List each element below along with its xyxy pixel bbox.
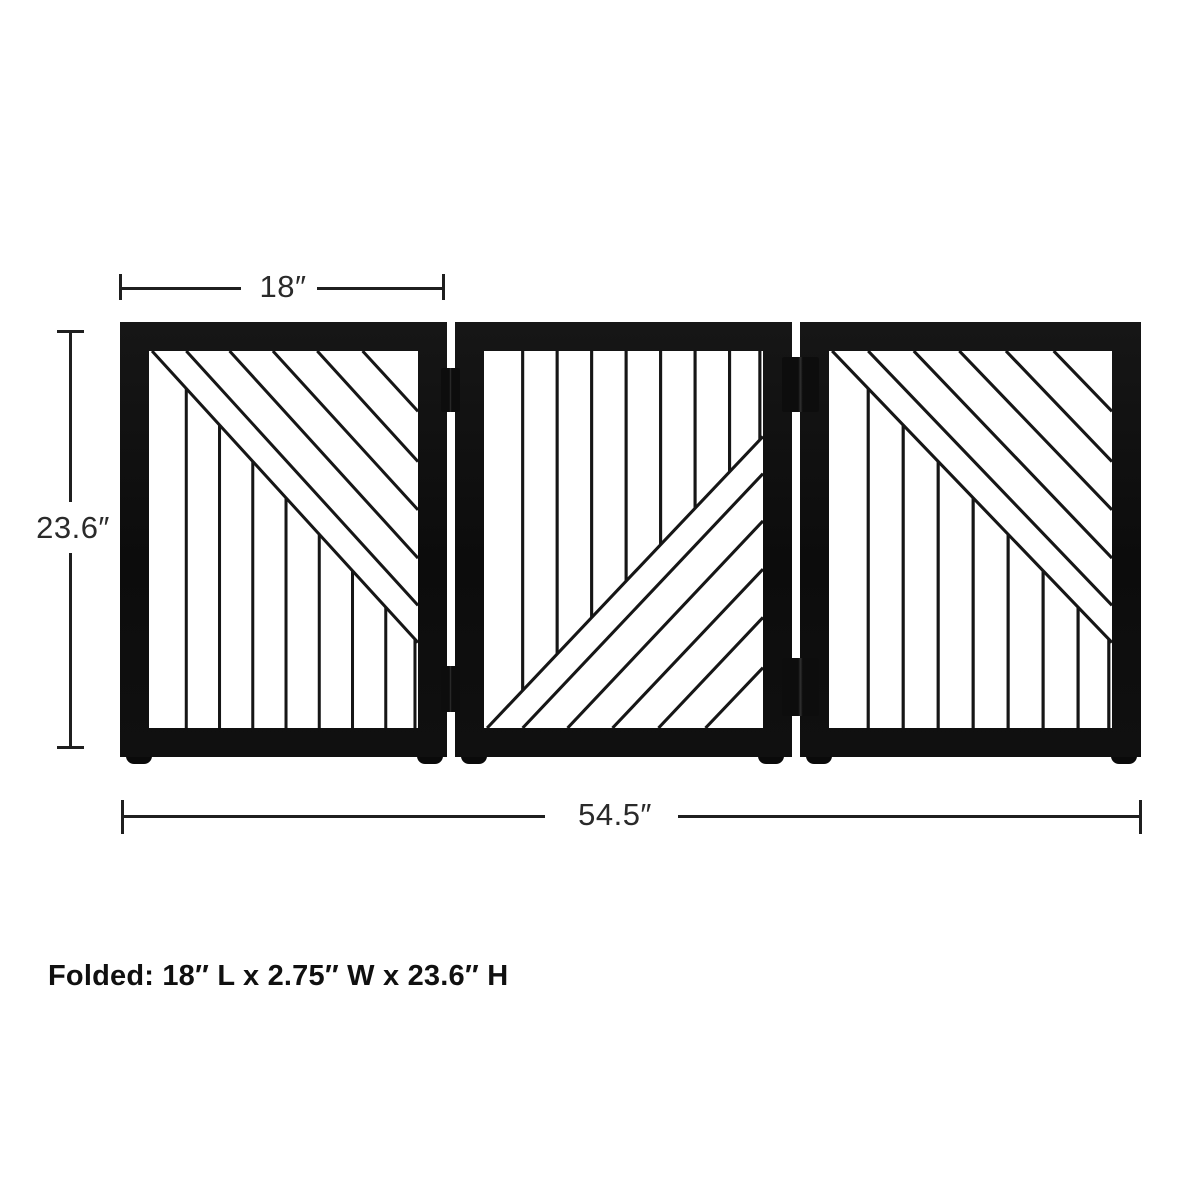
vertical-slats	[868, 388, 1109, 728]
slat-pattern-diagonal-top	[149, 351, 418, 728]
hinge-right-bottom	[782, 658, 819, 716]
slat-pattern-diagonal-bottom	[484, 351, 763, 728]
dim-line-segment	[317, 287, 443, 290]
panel-opening	[829, 351, 1112, 728]
hinge-left-bottom	[441, 666, 460, 712]
slat-pattern-diagonal-top	[829, 351, 1112, 728]
panel-opening	[149, 351, 418, 728]
hinge-right-top	[782, 357, 819, 412]
dim-tick-right	[1139, 800, 1142, 834]
total-width-label: 54.5″	[540, 796, 690, 834]
panel-width-label: 18″	[233, 268, 333, 306]
dim-line-segment	[123, 815, 545, 818]
dim-line-segment	[121, 287, 241, 290]
vertical-slats	[523, 351, 760, 691]
dim-line-segment	[69, 553, 72, 746]
product-dimension-diagram: 18″ 23.6″ 54.5″	[0, 0, 1200, 1200]
dim-line-segment	[678, 815, 1139, 818]
dim-tick-bottom	[57, 746, 84, 749]
hinge-left-top	[441, 368, 460, 412]
panel-opening	[484, 351, 763, 728]
gate-panel-middle	[455, 322, 792, 757]
gate-panel-left	[120, 322, 447, 757]
vertical-slats	[186, 388, 415, 728]
folded-dimensions-note: Folded: 18″ L x 2.75″ W x 23.6″ H	[48, 960, 508, 993]
dim-line-segment	[69, 332, 72, 502]
gate-panel-right	[800, 322, 1141, 757]
